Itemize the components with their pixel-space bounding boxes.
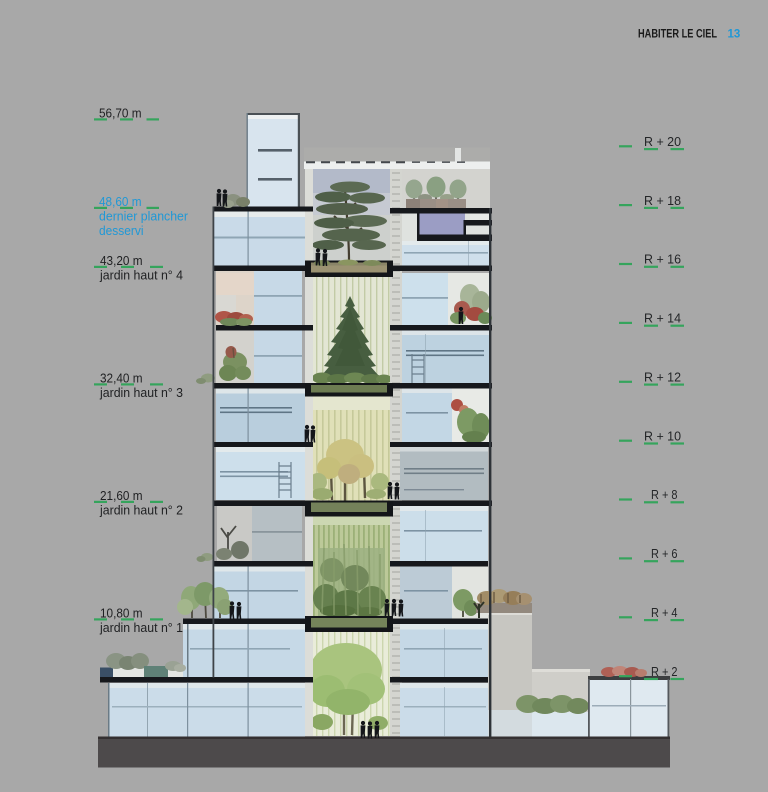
svg-text:R + 12: R + 12 xyxy=(644,370,681,385)
svg-text:jardin haut n° 4: jardin haut n° 4 xyxy=(99,268,183,283)
svg-text:R + 14: R + 14 xyxy=(644,311,681,326)
svg-text:HABITER LE CIEL: HABITER LE CIEL xyxy=(638,29,717,41)
svg-text:R + 16: R + 16 xyxy=(644,252,681,267)
svg-text:R + 8: R + 8 xyxy=(651,487,678,502)
svg-text:56,70 m: 56,70 m xyxy=(99,106,142,121)
svg-text:32,40 m: 32,40 m xyxy=(100,371,143,386)
svg-text:R + 2: R + 2 xyxy=(651,664,678,679)
svg-text:48,60 m: 48,60 m xyxy=(99,194,142,209)
svg-text:jardin haut n° 3: jardin haut n° 3 xyxy=(99,385,183,400)
svg-text:R + 18: R + 18 xyxy=(644,193,681,208)
svg-text:21,60 m: 21,60 m xyxy=(100,488,143,503)
svg-text:R + 10: R + 10 xyxy=(644,428,681,443)
svg-text:desservi: desservi xyxy=(99,223,144,238)
svg-text:jardin haut n° 1: jardin haut n° 1 xyxy=(99,620,183,635)
svg-text:43,20 m: 43,20 m xyxy=(100,253,143,268)
svg-text:R + 6: R + 6 xyxy=(651,546,678,561)
svg-text:13: 13 xyxy=(728,29,741,41)
svg-text:R + 20: R + 20 xyxy=(644,134,681,149)
svg-text:R + 4: R + 4 xyxy=(651,605,678,620)
svg-text:jardin haut n° 2: jardin haut n° 2 xyxy=(99,503,183,518)
svg-text:10,80 m: 10,80 m xyxy=(100,606,143,621)
svg-text:dernier plancher: dernier plancher xyxy=(99,209,189,224)
